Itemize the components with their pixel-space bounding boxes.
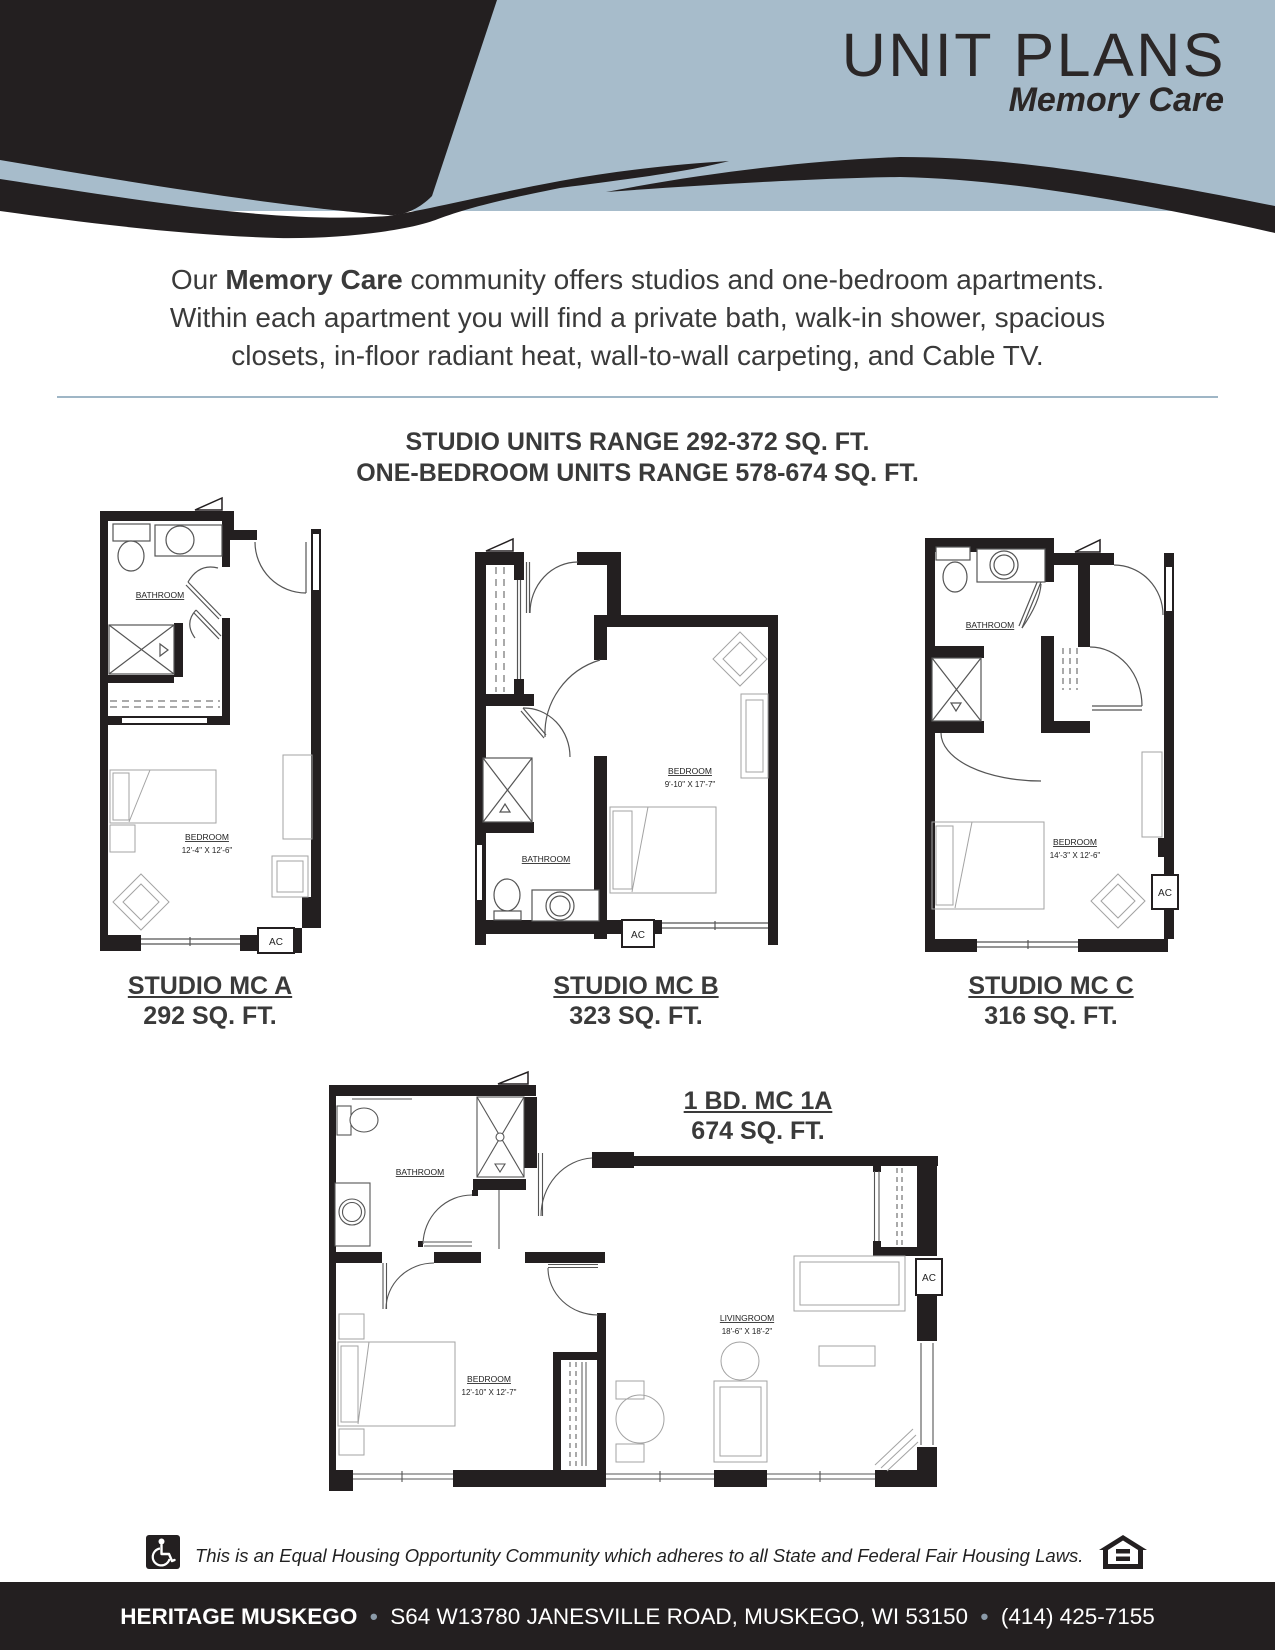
svg-text:AC: AC <box>1158 888 1172 899</box>
svg-text:BATHROOM: BATHROOM <box>396 1167 444 1177</box>
svg-text:12'-4" X 12'-6": 12'-4" X 12'-6" <box>182 846 233 855</box>
svg-text:BEDROOM: BEDROOM <box>1053 837 1097 847</box>
svg-text:AC: AC <box>269 937 283 948</box>
svg-text:BEDROOM: BEDROOM <box>185 832 229 842</box>
svg-text:12'-10" X 12'-7": 12'-10" X 12'-7" <box>462 1388 517 1397</box>
svg-text:BEDROOM: BEDROOM <box>668 766 712 776</box>
svg-text:BATHROOM: BATHROOM <box>966 620 1014 630</box>
svg-text:BATHROOM: BATHROOM <box>522 854 570 864</box>
svg-text:AC: AC <box>922 1273 936 1284</box>
svg-text:BEDROOM: BEDROOM <box>467 1374 511 1384</box>
svg-text:9'-10" X 17'-7": 9'-10" X 17'-7" <box>665 780 716 789</box>
svg-text:14'-3" X 12'-6": 14'-3" X 12'-6" <box>1050 851 1101 860</box>
svg-text:18'-6" X 18'-2": 18'-6" X 18'-2" <box>722 1327 773 1336</box>
svg-text:LIVINGROOM: LIVINGROOM <box>720 1313 774 1323</box>
svg-text:BATHROOM: BATHROOM <box>136 590 184 600</box>
svg-text:AC: AC <box>631 930 645 941</box>
